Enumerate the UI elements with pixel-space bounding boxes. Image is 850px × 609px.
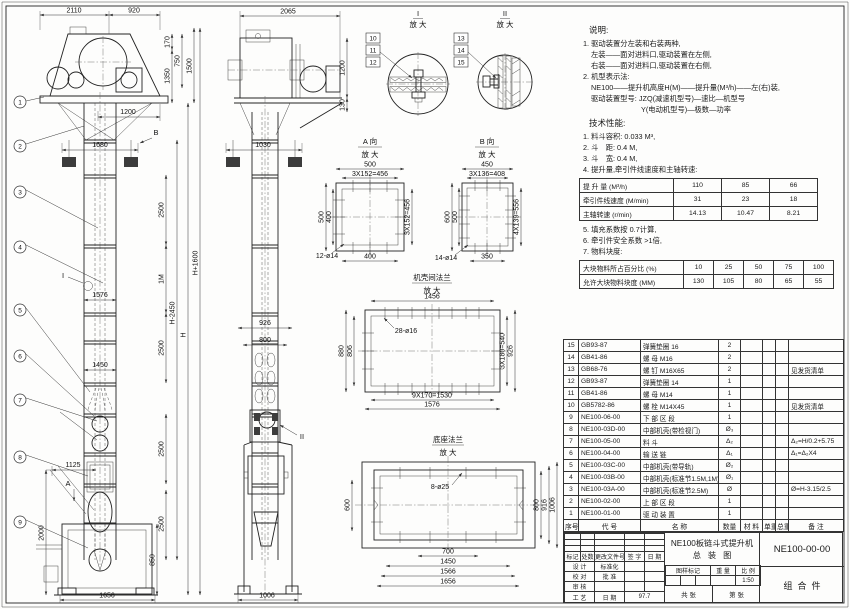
table-cell: 3 (564, 484, 579, 496)
table-cell: 15 (564, 340, 579, 352)
detail-2-sub: 放 大 (496, 19, 514, 29)
table-cell (741, 436, 763, 448)
table-cell: Ø (719, 484, 741, 496)
balloon-10: 10 (369, 36, 377, 43)
table-cell: 1 (564, 508, 579, 520)
table-cell (776, 472, 789, 484)
callout: 12-ø14 (316, 253, 338, 260)
table-cell: 80 (744, 275, 774, 289)
table-cell (763, 484, 776, 496)
table-cell (763, 364, 776, 376)
table-cell (776, 340, 789, 352)
table-cell: 1 (719, 496, 741, 508)
balloon-12: 12 (369, 60, 377, 67)
table-row: 7NE100-05-00料 斗Δ₂Δ₂=H/0.2+5.75 (564, 436, 844, 448)
dim: 400 (326, 211, 333, 223)
weight-label: 重 量 (711, 566, 736, 576)
rev-header: 标记 (565, 552, 581, 562)
note-line: 3. 斗 宽: 0.4 M, (583, 153, 844, 164)
table-cell: NE100-01-00 (579, 508, 641, 520)
table-cell (789, 376, 844, 388)
role-cell: 批 准 (595, 572, 625, 582)
table-cell: 1 (719, 508, 741, 520)
table-row: 允许大块物料块度 (MM)130105806555 (580, 275, 834, 289)
balloon-8: 8 (18, 455, 22, 462)
table-cell: 1 (719, 376, 741, 388)
balloon-7: 7 (18, 398, 22, 405)
table-cell: 螺 母 M16 (641, 352, 719, 364)
balloon-3: 3 (18, 190, 22, 197)
table-cell: NE100-06-00 (579, 412, 641, 424)
table-cell: 允许大块物料块度 (MM) (580, 275, 684, 289)
role-cell: 日 期 (595, 592, 625, 603)
table-cell: 2 (719, 340, 741, 352)
table-cell: 2 (564, 496, 579, 508)
table-cell: 11 (564, 388, 579, 400)
table-cell: 中部机壳(带检视门) (641, 424, 719, 436)
note-line: 5. 填充系数按 0.7计算, (583, 224, 844, 235)
table-cell (763, 472, 776, 484)
table-cell (776, 424, 789, 436)
rev-header: 更改文件号 (595, 552, 625, 562)
dim: 2065 (280, 9, 296, 16)
table-cell: 螺 钉 M16X65 (641, 364, 719, 376)
table-cell (789, 424, 844, 436)
view-a-sub: 放 大 (361, 149, 379, 159)
dim: 880 (339, 345, 346, 357)
right-panel: 说明: 1. 驱动装置分左装和右装两种, 左装——面对进料口,驱动装置在左侧, … (563, 8, 844, 603)
table-cell: 18 (770, 193, 818, 207)
base-flange-dimensions: 8-ø25 600 800 916 1006 700 1450 1566 165… (345, 462, 558, 586)
dim: 2500 (159, 202, 166, 218)
dim: 2110 (66, 8, 81, 15)
table-row: 4NE100-03B-00中部机壳(标准节1.5M,1M)Ø₁ (564, 472, 844, 484)
bom-header-row: 序号 代 号 名 称 数量 材 料 单重 总重 备 注 (564, 520, 844, 532)
tech-heading: 技术性能: (589, 117, 844, 129)
table-cell: 10 (564, 400, 579, 412)
sheet-count: 共 张 第 张 (665, 585, 760, 602)
bom-header: 总重 (776, 520, 789, 532)
balloon-1: 1 (18, 100, 22, 107)
table-cell: Ø₃ (719, 424, 741, 436)
drawing-title-line1: NE100板链斗式提升机 (671, 537, 753, 549)
table-row: 主轴转速 (r/min)14.1310.478.21 (580, 207, 818, 221)
dim: 1456 (424, 294, 440, 301)
role-cell: 校 对 (565, 572, 595, 582)
table-cell: 75 (774, 261, 804, 275)
table-cell (776, 400, 789, 412)
table-row: 8NE100-03D-00中部机壳(带检视门)Ø₃ (564, 424, 844, 436)
view-a-dimensions: 500 3X152=456 500 400 400 3X152=456 12-ø… (316, 162, 412, 262)
table-cell (789, 460, 844, 472)
table-row: 9NE100-06-00下 部 区 段1 (564, 412, 844, 424)
table-cell (741, 364, 763, 376)
table-cell: NE100-03B-00 (579, 472, 641, 484)
table-cell (763, 508, 776, 520)
callout: 14-ø14 (435, 255, 457, 262)
table-cell: NE100-03D-00 (579, 424, 641, 436)
table-cell: 螺 母 M14 (641, 388, 719, 400)
detail-i-marker: I (62, 271, 64, 280)
table-row: 2NE100-02-00上 部 区 段1 (564, 496, 844, 508)
table-cell (789, 340, 844, 352)
note-line: NE100——提升机高度H(M)——提升量(M³/h)——左(右)装, (591, 82, 844, 93)
note-line: 驱动装置型号: JZQ(减速机型号)—速比—机型号 (591, 93, 844, 104)
dim: 1450 (440, 559, 456, 566)
casing-flange-title: 机壳间法兰 (413, 272, 451, 282)
table-cell (741, 472, 763, 484)
table-row: 大块物料所占百分比 (%)10255075100 (580, 261, 834, 275)
detail-view-1: I 放 大 10 11 12 (366, 9, 450, 116)
notes-heading: 说明: (589, 24, 844, 36)
title-block-right: NE100-00-00 组合件 (759, 533, 844, 602)
table-cell: 8.21 (770, 207, 818, 221)
table-cell: GB93-87 (579, 376, 641, 388)
rev-header: 日 期 (645, 552, 665, 562)
dim: 500 (364, 162, 376, 169)
table-cell: GB93-87 (579, 340, 641, 352)
note-line: 2. 斗 距: 0.4 M, (583, 142, 844, 153)
dim: 1656 (99, 593, 115, 600)
table-cell (789, 508, 844, 520)
view-a-marker: A (65, 479, 70, 488)
dim: 1576 (424, 402, 440, 409)
table-row: 6NE100-04-00输 送 链Δ₁Δ₁=Δ₂X4 (564, 448, 844, 460)
role-cell (595, 582, 625, 592)
table-cell: 6 (564, 448, 579, 460)
table-cell: 2 (719, 364, 741, 376)
table-cell: 8 (564, 424, 579, 436)
detail-2-title: II (503, 9, 507, 18)
table-cell: 螺 栓 M14X45 (641, 400, 719, 412)
dim: 800 (259, 337, 271, 344)
table-cell: 110 (674, 179, 722, 193)
table-cell (776, 496, 789, 508)
dim: 1566 (440, 569, 456, 576)
table-cell: Ø₁ (719, 472, 741, 484)
balloon-11: 11 (370, 48, 377, 55)
detail-view-2: II 放 大 13 14 15 (454, 9, 534, 111)
dim: 1656 (440, 579, 456, 586)
note-line: 右装——面对进料口,驱动装置在右侧, (591, 60, 844, 71)
casing-flange-view: 机壳间法兰 放 大 (358, 272, 508, 398)
balloon-14: 14 (457, 48, 465, 55)
scale-value: 1:50 (736, 576, 761, 586)
dim: 1450 (92, 362, 108, 369)
note-line: 左装——面对进料口,驱动装置在左侧, (591, 49, 844, 60)
dim: 450 (481, 162, 493, 169)
table-cell: NE100-03A-00 (579, 484, 641, 496)
table-cell (741, 508, 763, 520)
table-row: 14GB41-86螺 母 M162 (564, 352, 844, 364)
note-line: Y(电动机型号)—极数—功率 (641, 104, 844, 115)
table-cell: NE100-04-00 (579, 448, 641, 460)
dim: 1576 (92, 292, 108, 299)
dim: 1680 (92, 142, 108, 149)
dim: 926 (508, 345, 515, 357)
view-b-marker: B (153, 128, 158, 137)
balloon-5: 5 (18, 308, 22, 315)
table-cell: Ø=H-3.15/2.5 (789, 484, 844, 496)
table-cell (741, 424, 763, 436)
date-cell: 97.7 (625, 592, 665, 603)
dim: 170 (165, 36, 172, 48)
balloon-9: 9 (18, 520, 22, 527)
dim: H-2450 (170, 301, 177, 324)
table-cell: NE100-02-00 (579, 496, 641, 508)
table-cell (776, 412, 789, 424)
note-line: 2. 机型表示法: (583, 71, 844, 82)
table-cell: 驱 动 装 置 (641, 508, 719, 520)
table-row: 牵引件线速度 (M/min)312318 (580, 193, 818, 207)
dim: 9X170=1530 (412, 393, 452, 400)
table-cell (776, 352, 789, 364)
bom-header: 备 注 (789, 520, 844, 532)
role-cell: 设 计 (565, 562, 595, 572)
table-cell (763, 352, 776, 364)
dim: 600 (345, 499, 352, 511)
dim: 350 (481, 254, 493, 261)
table-cell (741, 496, 763, 508)
main-elevation-view (36, 27, 168, 595)
table-cell: 10.47 (722, 207, 770, 221)
side-elevation-view (226, 30, 342, 600)
role-cell: 标准化 (595, 562, 625, 572)
table-cell (776, 376, 789, 388)
table-cell: 中部机壳(带导轨) (641, 460, 719, 472)
dim: H+1600 (193, 251, 200, 276)
table-cell (763, 400, 776, 412)
table-cell (741, 352, 763, 364)
table-cell: 12 (564, 376, 579, 388)
note-line: 4. 提升量,牵引件线速度和主轴转速: (583, 164, 844, 175)
table-cell: 见发货清单 (789, 364, 844, 376)
notes-section: 说明: 1. 驱动装置分左装和右装两种, 左装——面对进料口,驱动装置在左侧, … (563, 8, 844, 289)
table-cell: 主轴转速 (r/min) (580, 207, 674, 221)
table-cell: 100 (804, 261, 834, 275)
lump-size-table: 大块物料所占百分比 (%)10255075100允许大块物料块度 (MM)130… (579, 260, 834, 289)
note-line: 6. 牵引件安全系数 >1倍, (583, 235, 844, 246)
table-cell: 弹簧垫圈 16 (641, 340, 719, 352)
table-cell (741, 400, 763, 412)
title-block-center: NE100板链斗式提升机 总装图 图样标记 重 量 比 例 1:50 共 张 第… (664, 533, 759, 602)
table-cell: 输 送 链 (641, 448, 719, 460)
dim: 3X180=540 (500, 333, 507, 369)
dim: 1200 (120, 109, 136, 116)
detail-1-title: I (417, 9, 419, 18)
table-cell: 25 (714, 261, 744, 275)
table-cell: 弹簧垫圈 14 (641, 376, 719, 388)
dim: 1006 (550, 497, 557, 513)
table-cell (763, 412, 776, 424)
table-cell: 1 (719, 388, 741, 400)
table-cell (763, 376, 776, 388)
note-line: 1. 驱动装置分左装和右装两种, (583, 38, 844, 49)
table-cell: Δ₂ (719, 436, 741, 448)
dim: H (181, 332, 188, 337)
table-cell (789, 388, 844, 400)
table-cell (741, 376, 763, 388)
dim: 500 (319, 211, 326, 223)
view-a: A 向 放 大 (328, 136, 412, 259)
base-flange-view: 底座法兰 放 大 (355, 434, 542, 554)
balloon-4: 4 (18, 245, 22, 252)
dim: 3X152=456 (352, 171, 388, 178)
dim: 800 (534, 499, 541, 511)
table-row: 12GB93-87弹簧垫圈 141 (564, 376, 844, 388)
callout: 28-ø16 (395, 328, 417, 335)
table-cell: 提 升 量 (M³/h) (580, 179, 674, 193)
table-cell (776, 364, 789, 376)
table-cell: 1 (719, 400, 741, 412)
table-cell: 23 (722, 193, 770, 207)
table-cell: GB41-86 (579, 388, 641, 400)
table-cell (741, 412, 763, 424)
balloon-15: 15 (457, 60, 465, 67)
detail-ii-marker: II (300, 432, 304, 441)
dim: 1200 (340, 60, 347, 76)
drawing-sheet: 2110 920 170 1350 750 1500 1200 1680 157… (0, 0, 850, 609)
table-cell: 13 (564, 364, 579, 376)
table-cell: 130 (684, 275, 714, 289)
table-cell (776, 436, 789, 448)
drawing-number: NE100-00-00 (760, 533, 844, 567)
bom-header: 单重 (763, 520, 776, 532)
table-cell: 1 (719, 412, 741, 424)
table-cell (763, 424, 776, 436)
dim: 750 (175, 55, 182, 67)
table-cell (776, 388, 789, 400)
dim: 700 (442, 549, 454, 556)
sheet-total: 共 张 (665, 585, 713, 602)
table-cell (789, 412, 844, 424)
rev-header: 签 字 (625, 552, 645, 562)
table-row: 5NE100-03C-00中部机壳(带导轨)Ø₂ (564, 460, 844, 472)
note-line: 7. 物料块度: (583, 246, 844, 257)
bom-header: 序号 (564, 520, 579, 532)
note-line: 1. 料斗容积: 0.033 M³, (583, 131, 844, 142)
table-cell: 55 (804, 275, 834, 289)
detail-1-sub: 放 大 (409, 19, 427, 29)
title-block-revision-area: 标记 处数 更改文件号 签 字 日 期 设 计标准化 校 对批 准 审 核 工 … (564, 533, 665, 603)
table-cell (741, 388, 763, 400)
table-cell: 65 (774, 275, 804, 289)
table-cell (776, 460, 789, 472)
table-cell: 上 部 区 段 (641, 496, 719, 508)
base-flange-title: 底座法兰 (433, 434, 463, 444)
base-flange-sub: 放 大 (439, 447, 457, 457)
dim: 1500 (187, 58, 194, 74)
table-cell (763, 496, 776, 508)
drawing-title: NE100板链斗式提升机 总装图 (665, 533, 759, 566)
sheet-number: 第 张 (713, 585, 760, 602)
table-cell: 大块物料所占百分比 (%) (580, 261, 684, 275)
table-cell (763, 340, 776, 352)
balloon-6: 6 (18, 354, 22, 361)
dim: 3X152=456 (405, 199, 412, 235)
performance-table: 提 升 量 (M³/h)1108566牵引件线速度 (M/min)312318主… (579, 178, 818, 221)
dim: 130 (340, 99, 347, 111)
table-cell: GB5782-86 (579, 400, 641, 412)
table-cell: 料 斗 (641, 436, 719, 448)
table-cell (763, 448, 776, 460)
table-row: 3NE100-03A-00中部机壳(标准节2.5M)ØØ=H-3.15/2.5 (564, 484, 844, 496)
dim: 600 (445, 211, 452, 223)
dim: 926 (259, 320, 271, 327)
rev-header: 处数 (581, 552, 595, 562)
callout: 8-ø25 (431, 484, 449, 491)
view-b-sub: 放 大 (478, 149, 496, 159)
dim: 4X139=556 (514, 199, 521, 235)
mark-weight-scale: 图样标记 重 量 比 例 1:50 (665, 565, 761, 586)
role-cell: 工 艺 (565, 592, 595, 603)
table-cell (789, 472, 844, 484)
table-cell: 5 (564, 460, 579, 472)
table-cell (741, 460, 763, 472)
table-cell (789, 496, 844, 508)
dim: 920 (128, 8, 140, 15)
bom-header: 名 称 (641, 520, 719, 532)
dim: 916 (542, 499, 549, 511)
bom-header: 代 号 (579, 520, 641, 532)
table-cell (741, 484, 763, 496)
table-cell: 50 (744, 261, 774, 275)
drawing-title-line2: 总装图 (686, 549, 739, 561)
table-cell: GB68-76 (579, 364, 641, 376)
dim: 1350 (165, 68, 172, 84)
table-cell: NE100-05-00 (579, 436, 641, 448)
table-cell: 66 (770, 179, 818, 193)
bom-header: 数量 (719, 520, 741, 532)
dim: 500 (452, 211, 459, 223)
table-cell: 2 (719, 352, 741, 364)
main-dimensions: 2110 920 170 1350 750 1500 1200 1680 157… (39, 8, 201, 604)
scale-label: 比 例 (736, 566, 761, 576)
table-cell: Δ₁=Δ₂X4 (789, 448, 844, 460)
dim: 806 (347, 345, 354, 357)
table-cell (741, 448, 763, 460)
table-row: 1NE100-01-00驱 动 装 置1 (564, 508, 844, 520)
table-cell: Δ₁ (719, 448, 741, 460)
table-cell: Δ₂=H/0.2+5.75 (789, 436, 844, 448)
dim: 1006 (259, 593, 275, 600)
table-cell: 7 (564, 436, 579, 448)
table-cell: Ø₂ (719, 460, 741, 472)
table-cell (776, 448, 789, 460)
role-cell: 审 核 (565, 582, 595, 592)
table-cell: 下 部 区 段 (641, 412, 719, 424)
table-cell (789, 352, 844, 364)
bom-table: 15GB93-87弹簧垫圈 16214GB41-86螺 母 M16213GB68… (563, 339, 844, 532)
table-cell: 中部机壳(标准节1.5M,1M) (641, 472, 719, 484)
bom-header: 材 料 (741, 520, 763, 532)
table-cell: 31 (674, 193, 722, 207)
dim: 2500 (159, 516, 166, 532)
table-cell (741, 340, 763, 352)
table-cell: NE100-03C-00 (579, 460, 641, 472)
view-a-title: A 向 (363, 136, 377, 146)
dim: 2500 (159, 340, 166, 356)
dim: 400 (364, 254, 376, 261)
table-cell: 14.13 (674, 207, 722, 221)
table-cell: 85 (722, 179, 770, 193)
table-cell (763, 436, 776, 448)
dim: 1030 (255, 142, 271, 149)
mark-label: 图样标记 (666, 566, 711, 576)
part-type: 组合件 (760, 567, 844, 603)
balloon-2: 2 (18, 144, 22, 151)
table-row: 10GB5782-86螺 栓 M14X451见发货清单 (564, 400, 844, 412)
